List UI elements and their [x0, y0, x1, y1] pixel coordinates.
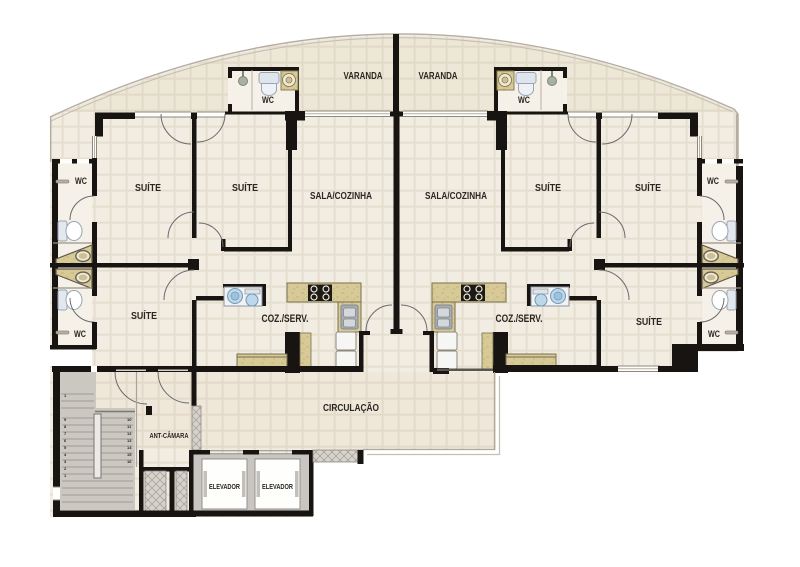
svg-text:VARANDA: VARANDA: [419, 71, 458, 82]
svg-text:12: 12: [127, 431, 132, 436]
svg-text:SUÍTE: SUÍTE: [635, 183, 661, 194]
svg-text:15: 15: [127, 452, 132, 457]
svg-text:WC: WC: [262, 95, 274, 105]
svg-text:SUÍTE: SUÍTE: [232, 183, 258, 194]
svg-text:14: 14: [127, 445, 132, 450]
svg-text:WC: WC: [708, 329, 720, 339]
svg-text:COZ./SERV.: COZ./SERV.: [496, 313, 543, 325]
svg-text:VARANDA: VARANDA: [344, 71, 383, 82]
svg-text:SUÍTE: SUÍTE: [131, 311, 157, 322]
svg-text:SUÍTE: SUÍTE: [535, 183, 561, 194]
svg-text:SUÍTE: SUÍTE: [636, 317, 662, 328]
svg-text:SALA/COZINHA: SALA/COZINHA: [310, 191, 372, 202]
svg-text:16: 16: [127, 459, 132, 464]
svg-text:WC: WC: [707, 176, 719, 186]
svg-text:SALA/COZINHA: SALA/COZINHA: [425, 191, 487, 202]
svg-text:ANT-CÂMARA: ANT-CÂMARA: [150, 431, 189, 440]
svg-text:CIRCULAÇÃO: CIRCULAÇÃO: [323, 401, 379, 414]
svg-text:ELEVADOR: ELEVADOR: [209, 484, 240, 491]
svg-text:COZ./SERV.: COZ./SERV.: [262, 313, 309, 325]
svg-text:WC: WC: [518, 95, 530, 105]
svg-text:10: 10: [127, 417, 132, 422]
svg-text:13: 13: [127, 438, 132, 443]
svg-text:WC: WC: [75, 176, 87, 186]
svg-text:SUÍTE: SUÍTE: [135, 183, 161, 194]
svg-text:ELEVADOR: ELEVADOR: [262, 484, 293, 491]
svg-text:WC: WC: [74, 329, 86, 339]
